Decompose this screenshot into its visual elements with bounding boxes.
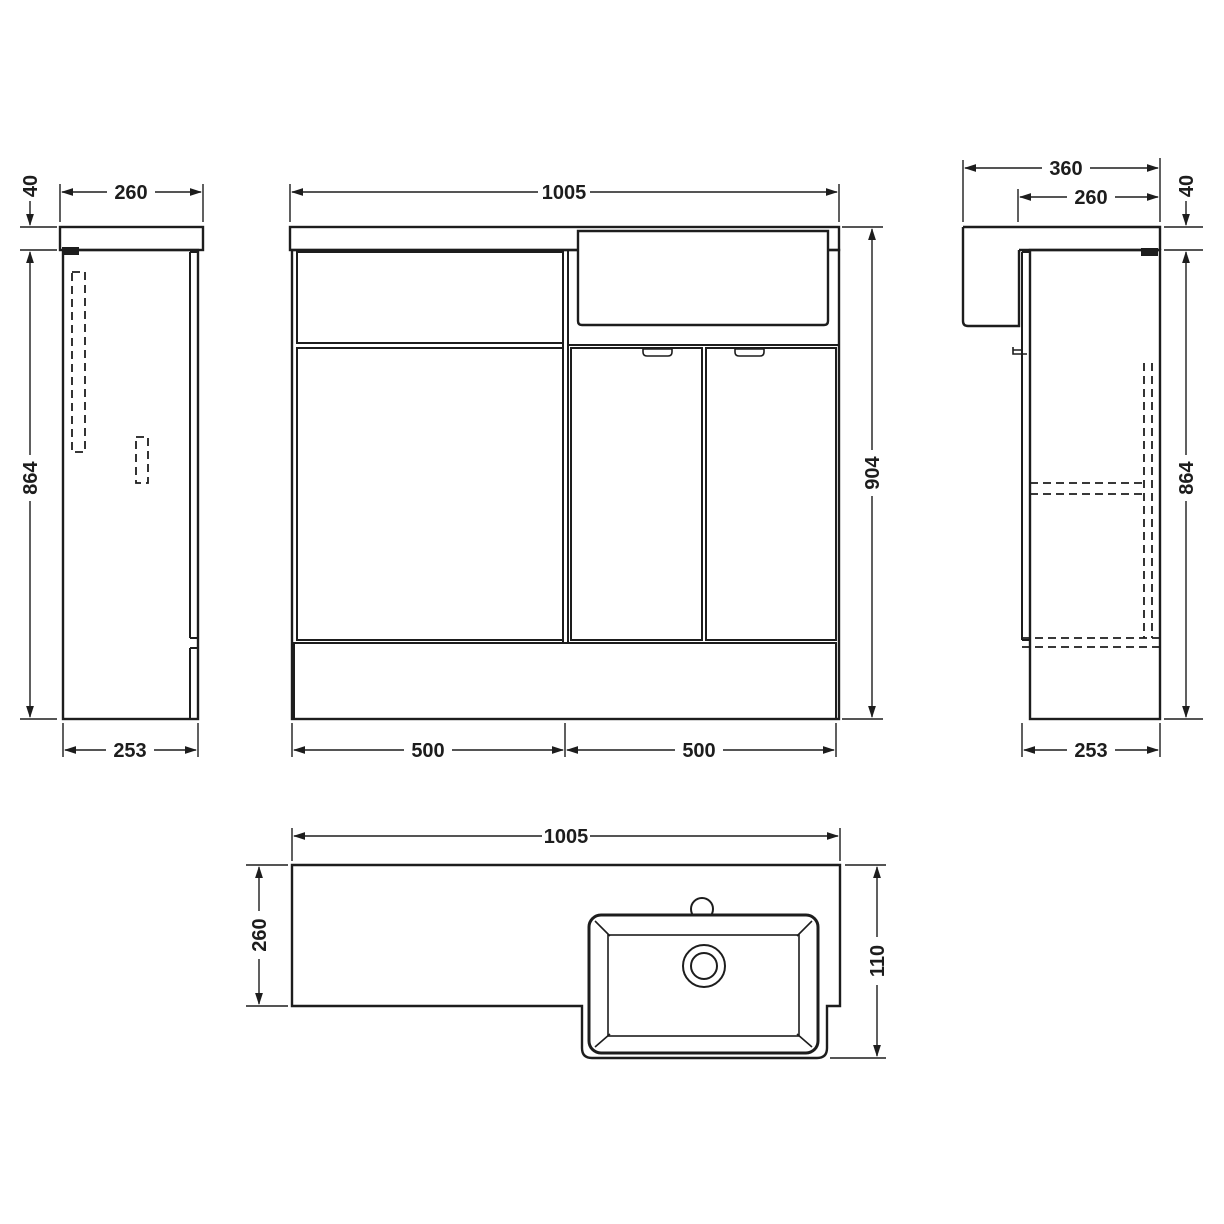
hinge-clip-icon [62, 247, 79, 255]
dim-front-overall-height: 904 [862, 455, 884, 489]
door-handle-notch [643, 349, 672, 356]
hidden-handle-detail [136, 437, 148, 483]
dim-front-bottom-right-width: 500 [682, 740, 715, 762]
cabinet-side-panel [63, 250, 198, 719]
basin-front-panel [578, 231, 828, 325]
dim-plan-top-width: 1005 [544, 826, 589, 848]
dim-plan-basin-projection: 110 [867, 945, 889, 977]
door-bracket-icon [1013, 347, 1027, 354]
left-side-elevation [60, 227, 203, 719]
worktop-side-profile [60, 227, 203, 250]
dim-left-cabinet-height: 864 [20, 460, 42, 494]
dim-front-bottom-left-width: 500 [411, 740, 444, 762]
basin-projection-profile [963, 227, 1019, 326]
dim-right-cabinet-height: 864 [1176, 460, 1198, 494]
plinth-front [294, 643, 836, 719]
dim-right-overall-depth: 360 [1049, 158, 1082, 180]
vanity-door-right [706, 348, 836, 640]
dim-right-worktop-depth: 260 [1074, 187, 1107, 209]
hidden-door-stile [72, 272, 85, 452]
dim-left-worktop-thickness: 40 [20, 175, 42, 197]
worktop-side-profile [963, 227, 1160, 250]
vanity-unit-technical-drawing: 260 40 864 253 1005 904 500 500 360 260 … [0, 0, 1224, 1224]
dim-right-worktop-thickness: 40 [1176, 175, 1198, 197]
dim-front-top-width: 1005 [542, 182, 587, 204]
wc-upper-panel [297, 252, 563, 343]
hinge-clip-icon [1141, 248, 1158, 256]
cabinet-side-panel [1030, 250, 1160, 719]
wc-main-panel [297, 348, 563, 640]
right-side-elevation [963, 227, 1160, 719]
dim-right-bottom-depth: 253 [1074, 740, 1107, 762]
vanity-door-left [571, 348, 702, 640]
dim-plan-counter-depth: 260 [249, 918, 271, 951]
technical-drawing-page: 260 40 864 253 1005 904 500 500 360 260 … [0, 0, 1224, 1224]
plan-view [292, 865, 840, 1058]
front-elevation [290, 227, 839, 719]
door-handle-notch [735, 349, 764, 356]
dim-left-bottom-depth: 253 [113, 740, 146, 762]
dim-left-top-width: 260 [114, 182, 147, 204]
